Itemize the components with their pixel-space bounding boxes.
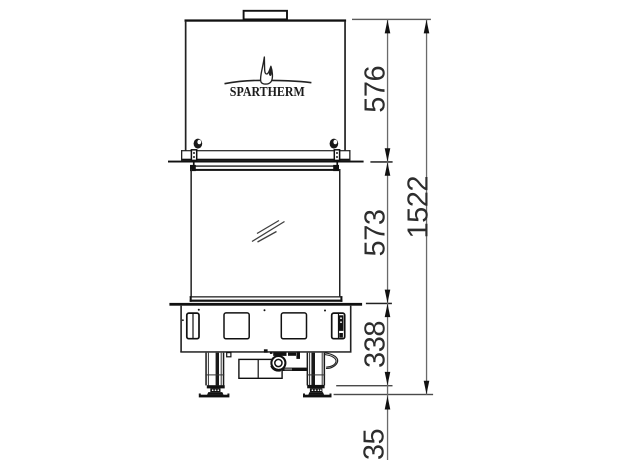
- svg-text:576: 576: [360, 66, 392, 113]
- svg-text:1522: 1522: [402, 176, 434, 239]
- svg-text:338: 338: [360, 321, 392, 368]
- svg-text:573: 573: [360, 210, 392, 257]
- svg-text:35: 35: [359, 429, 391, 460]
- svg-text:SPARTHERM: SPARTHERM: [230, 84, 305, 99]
